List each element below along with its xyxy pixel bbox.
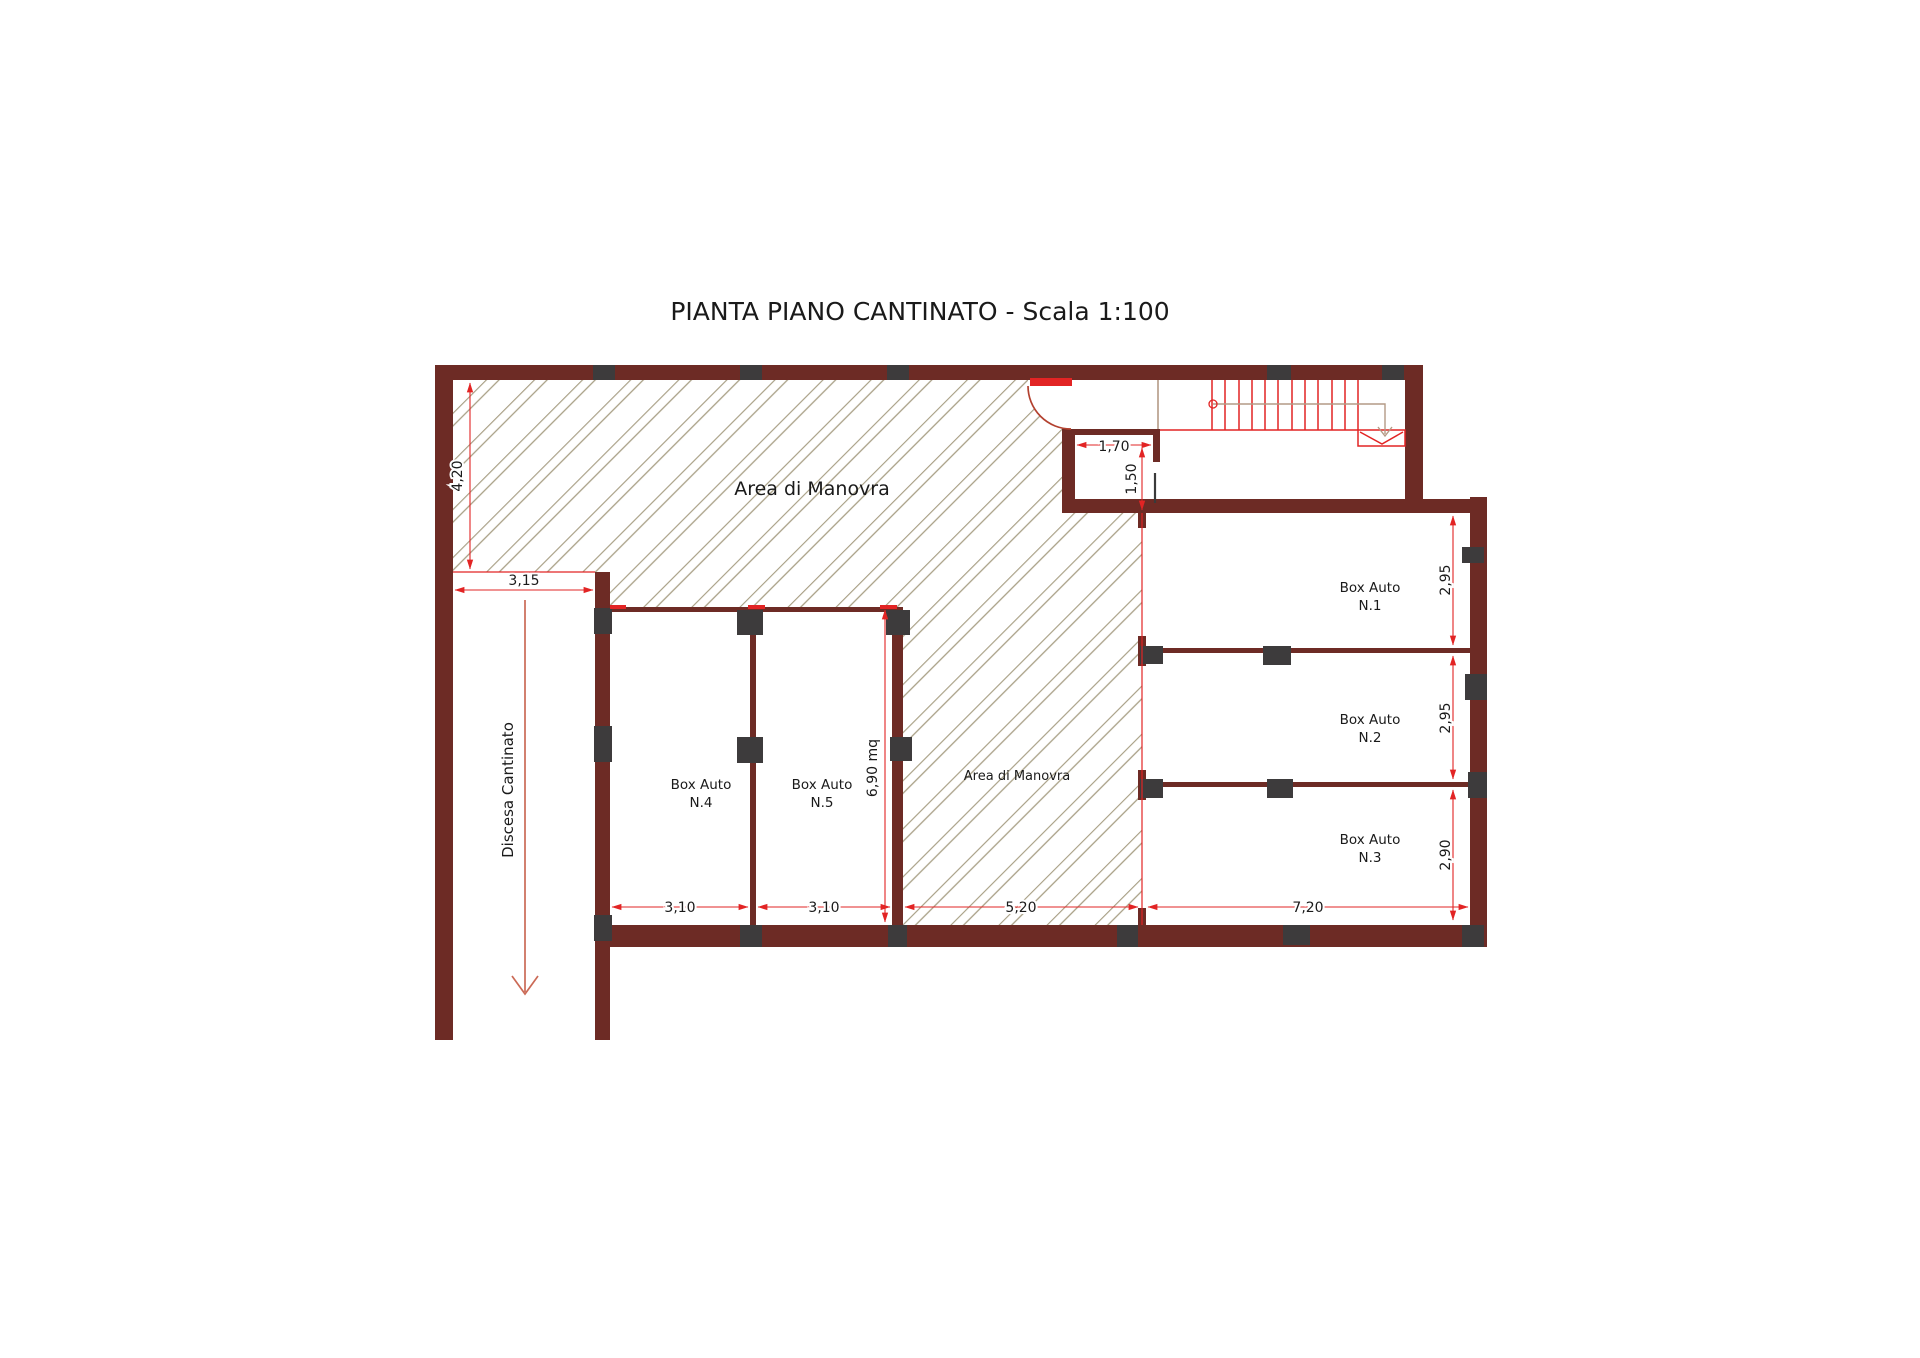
- wall-room-top: [1062, 429, 1160, 435]
- dim-label-central-width: 5,20: [1005, 900, 1036, 916]
- wall-box1-box2-divider: [1143, 648, 1472, 653]
- label-box1-line2: N.1: [1359, 598, 1382, 614]
- dim-label-right-width: 7,20: [1292, 900, 1323, 916]
- label-box4-line2: N.4: [690, 795, 713, 811]
- pillar: [740, 365, 762, 380]
- pillar: [1140, 646, 1163, 664]
- dim-label-ramp-width: 3,15: [508, 573, 539, 589]
- dim-label-box2-height: 2,95: [1438, 702, 1454, 733]
- dim-label-room-width: 1,70: [1098, 439, 1129, 455]
- pillar: [594, 726, 612, 762]
- pillar: [1382, 365, 1404, 380]
- dim-label-box5-width: 3,10: [808, 900, 839, 916]
- garage-opening-mark: [880, 605, 897, 609]
- label-discesa-cantinato: Discesa Cantinato: [499, 722, 517, 858]
- wall-bottom: [595, 925, 1487, 947]
- pillar: [890, 737, 912, 761]
- garage-opening-mark: [610, 605, 626, 609]
- staircase: [1158, 380, 1405, 446]
- pillar: [1267, 365, 1291, 380]
- pillar: [1263, 646, 1291, 665]
- label-box1-line1: Box Auto: [1340, 580, 1401, 596]
- pillar: [1283, 925, 1310, 945]
- label-box2-line1: Box Auto: [1340, 712, 1401, 728]
- wall-room-right: [1153, 429, 1160, 462]
- label-box3-line2: N.3: [1359, 850, 1382, 866]
- dim-label-box5-area: 6,90 mq: [865, 739, 881, 797]
- pillar: [886, 610, 910, 635]
- pillar: [1465, 674, 1487, 700]
- wall-ramp-right: [595, 572, 610, 1040]
- wall-right-lower: [1470, 497, 1487, 947]
- door-leaf: [1030, 378, 1072, 386]
- dim-label-box4-width: 3,10: [664, 900, 695, 916]
- garage-opening-mark: [748, 605, 765, 609]
- pillar: [1117, 925, 1138, 947]
- dim-label-box1-height: 2,95: [1438, 564, 1454, 595]
- pillar: [594, 915, 612, 941]
- dim-label-ramp-height: 4,20: [450, 460, 466, 491]
- wall-below-stairs: [1062, 499, 1487, 513]
- pillar: [594, 608, 612, 634]
- label-box5-line2: N.5: [811, 795, 834, 811]
- pillar: [887, 365, 909, 380]
- wall-box4-box5-divider: [750, 607, 756, 925]
- wall-right-upper: [1405, 365, 1423, 513]
- label-box4-line1: Box Auto: [671, 777, 732, 793]
- stair-direction-chevron: [1360, 432, 1403, 444]
- floor-plan-canvas: PIANTA PIANO CANTINATO - Scala 1:100: [0, 0, 1920, 1358]
- page-title: PIANTA PIANO CANTINATO - Scala 1:100: [670, 297, 1169, 326]
- stair-treads: [1212, 380, 1358, 430]
- pillar: [737, 610, 763, 635]
- pillar: [1267, 779, 1293, 798]
- pillar: [1140, 779, 1163, 798]
- pillar: [740, 925, 762, 947]
- pillar: [888, 925, 907, 947]
- pillar: [1462, 925, 1484, 947]
- label-box2-line2: N.2: [1359, 730, 1382, 746]
- manoeuvre-area-hatch: [453, 380, 1142, 925]
- pillar: [1462, 547, 1484, 563]
- wall-room-left: [1062, 429, 1075, 513]
- pillar: [737, 737, 763, 763]
- label-box3-line1: Box Auto: [1340, 832, 1401, 848]
- wall-box5-right: [892, 607, 903, 925]
- label-area-manovra-central: Area di Manovra: [964, 769, 1070, 784]
- wall-box2-box3-divider: [1143, 782, 1472, 787]
- label-box5-line1: Box Auto: [792, 777, 853, 793]
- dim-label-room-height: 1,50: [1124, 463, 1140, 494]
- dim-label-box3-height: 2,90: [1438, 839, 1454, 870]
- label-area-manovra-upper: Area di Manovra: [734, 478, 890, 500]
- pillar: [593, 365, 615, 380]
- pillar: [1468, 772, 1487, 798]
